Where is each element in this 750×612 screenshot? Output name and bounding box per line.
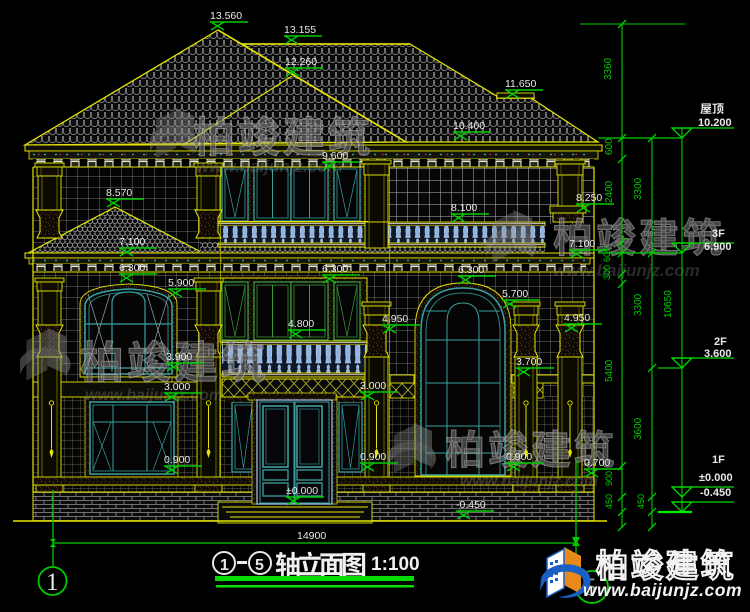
svg-text:3300: 3300 (633, 177, 644, 200)
svg-text:900: 900 (604, 471, 614, 486)
svg-text:8.100: 8.100 (451, 202, 477, 214)
svg-text:9.600: 9.600 (322, 150, 348, 162)
svg-text:10.200: 10.200 (698, 117, 732, 129)
svg-text:6.300: 6.300 (322, 263, 348, 275)
svg-text:3.000: 3.000 (164, 381, 190, 393)
svg-text:3.900: 3.900 (166, 351, 192, 363)
svg-text:1: 1 (220, 557, 229, 574)
svg-text:4.800: 4.800 (288, 318, 314, 330)
svg-text:±0.000: ±0.000 (699, 472, 733, 484)
svg-text:600: 600 (602, 247, 612, 262)
svg-text:0.900: 0.900 (360, 451, 386, 463)
svg-text:600: 600 (604, 138, 615, 155)
svg-text:5: 5 (255, 557, 264, 574)
svg-text:8.250: 8.250 (576, 192, 602, 204)
svg-text:2400: 2400 (604, 180, 615, 203)
svg-text:3.000: 3.000 (360, 380, 386, 392)
svg-text:3F: 3F (712, 228, 725, 240)
svg-text:11.650: 11.650 (505, 78, 536, 90)
svg-text:2F: 2F (714, 336, 727, 348)
svg-text:0.700: 0.700 (584, 457, 610, 469)
svg-text:5400: 5400 (604, 359, 615, 382)
svg-text:12.260: 12.260 (285, 56, 317, 68)
svg-text:3.700: 3.700 (516, 356, 542, 368)
svg-text:7.100: 7.100 (569, 238, 595, 250)
svg-text:0.900: 0.900 (164, 454, 190, 466)
svg-text:13.560: 13.560 (210, 10, 242, 22)
svg-text:-0.450: -0.450 (456, 499, 486, 511)
svg-text:www.baijunjz.com: www.baijunjz.com (583, 580, 742, 600)
svg-text:3.600: 3.600 (704, 348, 732, 360)
svg-text:450: 450 (604, 494, 614, 509)
svg-text:3360: 3360 (603, 57, 614, 80)
svg-text:www.baijunjz.com: www.baijunjz.com (460, 473, 598, 490)
svg-text:4.950: 4.950 (382, 313, 408, 325)
svg-text:www.baijunjz.com: www.baijunjz.com (85, 387, 223, 404)
svg-text:5.900: 5.900 (168, 277, 194, 289)
svg-text:13.155: 13.155 (284, 24, 316, 36)
svg-text:6.300: 6.300 (119, 262, 145, 274)
svg-text:1F: 1F (712, 454, 725, 466)
svg-text:±0.000: ±0.000 (286, 485, 318, 497)
svg-text:10650: 10650 (663, 290, 674, 318)
svg-text:7.100: 7.100 (119, 236, 145, 248)
svg-text:3300: 3300 (633, 293, 644, 316)
svg-text:-0.450: -0.450 (700, 487, 731, 499)
svg-text:450: 450 (636, 494, 646, 509)
svg-text:300: 300 (602, 265, 612, 280)
svg-text:6.900: 6.900 (704, 241, 732, 253)
svg-text:4.950: 4.950 (564, 312, 590, 324)
svg-text:3600: 3600 (633, 417, 644, 440)
svg-text:10.400: 10.400 (453, 120, 485, 132)
svg-text:14900: 14900 (297, 530, 326, 542)
svg-text:1: 1 (46, 569, 59, 596)
svg-text:1:100: 1:100 (371, 554, 420, 575)
svg-text:5.700: 5.700 (502, 288, 528, 300)
svg-text:www.baijunjz.com: www.baijunjz.com (196, 157, 343, 176)
svg-text:8.570: 8.570 (106, 187, 132, 199)
svg-text:6.300: 6.300 (458, 264, 484, 276)
svg-text:0.900: 0.900 (506, 451, 532, 463)
